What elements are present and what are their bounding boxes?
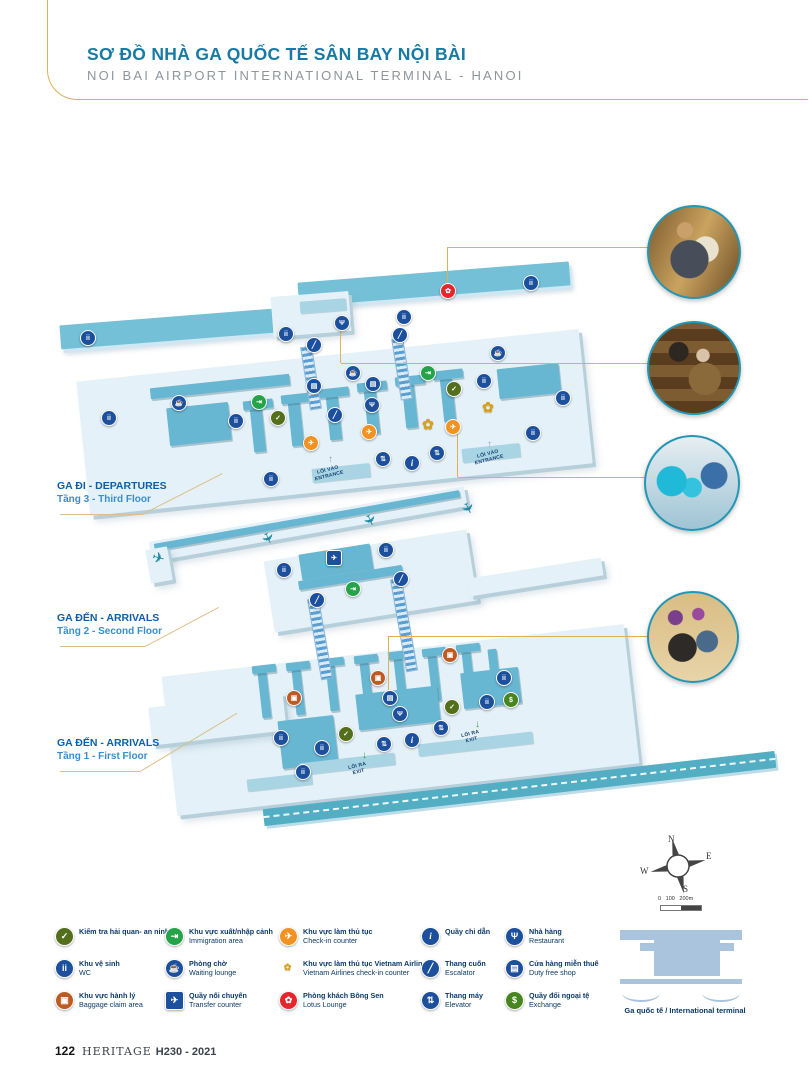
legend-item-label: Kiểm tra hải quan- an ninh	[79, 927, 169, 936]
currency-exchange-icon: $	[505, 991, 524, 1010]
wc-icon: ii	[101, 410, 117, 426]
waiting-lounge-icon: ☕	[165, 959, 184, 978]
legend-item-label: Thang máyElevator	[445, 991, 483, 1009]
floor2-label: GA ĐẾN - ARRIVALS Tầng 2 - Second Floor	[57, 612, 162, 637]
elevator-icon: ⇅	[429, 445, 445, 461]
floor3-label-sub: Tầng 3 - Third Floor	[57, 494, 167, 505]
wc-icon: ii	[314, 740, 330, 756]
immigration-icon: ⇥	[345, 581, 361, 597]
photo1-connector	[448, 247, 652, 248]
legend-item-label: Nhà hàngRestaurant	[529, 927, 564, 945]
wc-icon: ii	[80, 330, 96, 346]
waiting-lounge-icon: ☕	[490, 345, 506, 361]
up-arrow-icon: ↑	[487, 440, 492, 450]
terminal-pier-arc-right	[702, 984, 740, 1002]
terminal-center-block	[654, 940, 720, 976]
legend-item-label: Khu vệ sinhWC	[79, 959, 120, 977]
down-arrow-icon: ↓	[475, 720, 480, 730]
wc-icon: ii	[523, 275, 539, 291]
legend-item-label: Quầy đổi ngoại tệExchange	[529, 991, 589, 1009]
check-in-counter-icon: ✈	[445, 419, 461, 435]
floor3-label-leader	[60, 514, 142, 515]
wc-icon: ii	[555, 390, 571, 406]
baggage-claim-icon: ▣	[55, 991, 74, 1010]
scale-bar-right	[681, 906, 701, 910]
elevator-icon: ⇅	[375, 451, 391, 467]
photo2-connector	[341, 363, 650, 364]
customs-security-icon: ✓	[338, 726, 354, 742]
escalator-icon: ╱	[392, 327, 408, 343]
vietnam-airlines-lotus-icon: ✿	[279, 959, 296, 976]
legend-item-label: Quầy nối chuyếnTransfer counter	[189, 991, 247, 1009]
magazine-name: HERITAGE	[82, 1045, 152, 1058]
up-arrow-icon: ↑	[328, 455, 333, 465]
magazine-page: SƠ ĐỒ NHÀ GA QUỐC TẾ SÂN BAY NỘI BÀI NOI…	[0, 0, 809, 1092]
floor1-label-title: GA ĐẾN - ARRIVALS	[57, 737, 159, 749]
page-footer: 122HERITAGEH230 - 2021	[55, 1044, 216, 1058]
vietnam-airlines-lotus-icon: ✿	[481, 400, 495, 414]
currency-exchange-icon: $	[503, 692, 519, 708]
wc-icon: ii	[276, 562, 292, 578]
wc-icon: ii	[378, 542, 394, 558]
wc-icon: ii	[263, 471, 279, 487]
restaurant-icon: Ψ	[334, 315, 350, 331]
photo-lotus-lounge	[647, 205, 741, 299]
compass-w: W	[640, 866, 649, 876]
terminal-left-tab	[640, 943, 654, 951]
escalator-icon: ╱	[393, 571, 409, 587]
photo3-connector	[457, 434, 458, 477]
wc-icon: ii	[228, 413, 244, 429]
elevator-icon: ⇅	[433, 720, 449, 736]
floor3-label: GA ĐI - DEPARTURES Tầng 3 - Third Floor	[57, 480, 167, 505]
escalator-icon: ╱	[306, 337, 322, 353]
escalator-icon: ╱	[327, 407, 343, 423]
floor2-label-leader	[60, 646, 145, 647]
scale-bar-left	[661, 906, 681, 910]
floor2-label-title: GA ĐẾN - ARRIVALS	[57, 612, 162, 624]
lotus-lounge-icon: ✿	[440, 283, 456, 299]
terminal-caption: Ga quốc tế / International terminal	[600, 1006, 770, 1015]
floor1-label: GA ĐẾN - ARRIVALS Tầng 1 - First Floor	[57, 737, 159, 762]
restaurant-icon: Ψ	[392, 706, 408, 722]
information-icon: i	[404, 732, 420, 748]
wc-icon: ii	[525, 425, 541, 441]
compass-e: E	[706, 851, 712, 861]
vietnam-airlines-lotus-icon: ✿	[421, 417, 435, 431]
floor2-label-sub: Tầng 2 - Second Floor	[57, 626, 162, 637]
duty-free-icon: ▤	[505, 959, 524, 978]
legend-item-label: Khu vực hành lýBaggage claim area	[79, 991, 143, 1009]
check-in-counter-icon: ✈	[361, 424, 377, 440]
lotus-lounge-icon: ✿	[279, 991, 298, 1010]
compass-rose	[642, 830, 713, 901]
legend-item-label: Khu vực làm thủ tục Vietnam AirlinesViet…	[303, 959, 430, 977]
legend-item-label: Khu vực xuất/nhập cảnhImmigration area	[189, 927, 273, 945]
page-title: SƠ ĐỒ NHÀ GA QUỐC TẾ SÂN BAY NỘI BÀI	[87, 44, 466, 65]
transfer-counter-icon: ✈	[165, 991, 184, 1010]
wc-icon: ii	[273, 730, 289, 746]
wc-icon: ii	[496, 670, 512, 686]
terminal-pier-arc-left	[622, 984, 660, 1002]
photo-duty-free-shop	[647, 591, 739, 683]
wc-icon: ii	[55, 959, 74, 978]
terminal-top-bar	[620, 930, 742, 940]
immigration-icon: ⇥	[251, 394, 267, 410]
floor2-hall	[264, 529, 478, 632]
legend-item-label: Thang cuốnEscalator	[445, 959, 486, 977]
wc-icon: ii	[396, 309, 412, 325]
scale-label: 0 100 200m	[658, 896, 693, 902]
immigration-icon: ⇥	[420, 365, 436, 381]
escalator-icon: ╱	[421, 959, 440, 978]
check-in-counter-icon: ✈	[279, 927, 298, 946]
photo-checkin-counter	[644, 435, 740, 531]
legend-item-label: Khu vực làm thủ tụcCheck-in counter	[303, 927, 373, 945]
photo2-connector	[340, 328, 341, 363]
duty-free-icon: ▤	[306, 378, 322, 394]
photo4-connector	[389, 636, 647, 637]
baggage-claim-icon: ▣	[286, 690, 302, 706]
baggage-claim-icon: ▣	[442, 647, 458, 663]
legend-item-label: Phòng khách Bông SenLotus Lounge	[303, 991, 384, 1009]
customs-security-icon: ✓	[444, 699, 460, 715]
customs-security-icon: ✓	[270, 410, 286, 426]
floor3-pier-left	[59, 307, 300, 350]
restaurant-icon: Ψ	[505, 927, 524, 946]
wc-icon: ii	[476, 373, 492, 389]
duty-free-icon: ▤	[365, 376, 381, 392]
floor1-label-leader	[60, 771, 140, 772]
wc-icon: ii	[479, 694, 495, 710]
duty-free-icon: ▤	[382, 690, 398, 706]
floor3-label-title: GA ĐI - DEPARTURES	[57, 480, 167, 492]
legend-item-label: Cửa hàng miễn thuếDuty free shop	[529, 959, 599, 977]
information-icon: i	[404, 455, 420, 471]
wc-icon: ii	[278, 326, 294, 342]
waiting-lounge-icon: ☕	[345, 365, 361, 381]
baggage-claim-icon: ▣	[370, 670, 386, 686]
compass-n: N	[668, 834, 675, 844]
compass-s: S	[683, 884, 688, 894]
transfer-counter-icon: ✈	[326, 550, 342, 566]
scale-bar	[660, 905, 702, 911]
photo-restaurant-bar	[647, 321, 741, 415]
waiting-lounge-icon: ☕	[171, 395, 187, 411]
down-arrow-icon: ↓	[362, 751, 367, 761]
photo4-connector	[388, 636, 389, 696]
immigration-icon: ⇥	[165, 927, 184, 946]
escalator-icon: ╱	[309, 592, 325, 608]
floor1-label-sub: Tầng 1 - First Floor	[57, 751, 159, 762]
information-icon: i	[421, 927, 440, 946]
floor2-right-wing	[467, 558, 603, 597]
elevator-icon: ⇅	[421, 991, 440, 1010]
page-subtitle: NOI BAI AIRPORT INTERNATIONAL TERMINAL -…	[87, 68, 524, 83]
restaurant-icon: Ψ	[364, 397, 380, 413]
customs-security-icon: ✓	[446, 381, 462, 397]
page-number: 122	[55, 1044, 75, 1058]
legend-item-label: Phòng chờWaiting lounge	[189, 959, 236, 977]
customs-security-icon: ✓	[55, 927, 74, 946]
issue-number: H230 - 2021	[156, 1046, 217, 1058]
legend-item-label: Quầy chỉ dẫn	[445, 927, 490, 936]
elevator-icon: ⇅	[376, 736, 392, 752]
terminal-right-tab	[720, 943, 734, 951]
check-in-counter-icon: ✈	[303, 435, 319, 451]
wc-icon: ii	[295, 764, 311, 780]
photo3-connector	[458, 477, 648, 478]
